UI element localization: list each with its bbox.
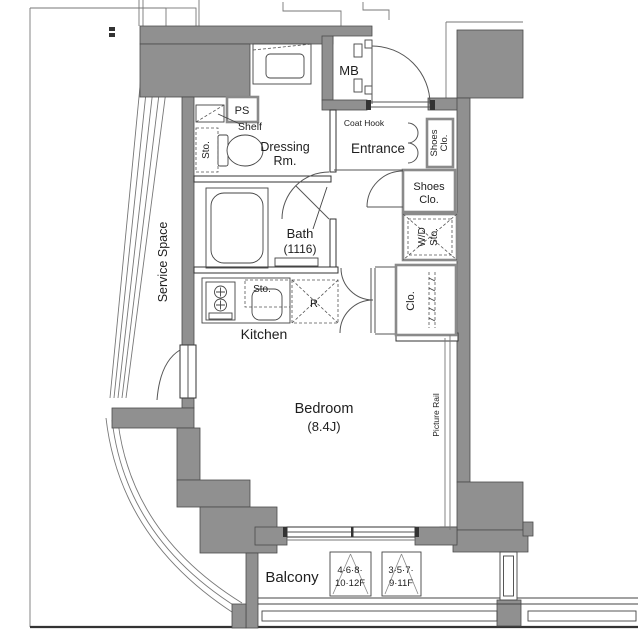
meter (354, 79, 362, 92)
wall-left-stub (182, 398, 194, 408)
bathtub-inner (211, 193, 263, 263)
balcony-railing-lines (258, 598, 638, 604)
fixture-label-shelf: Shelf (238, 121, 262, 133)
room-label-bedroom-size: (8.4J) (307, 419, 340, 434)
room-label-bath-size: (1116) (284, 242, 317, 256)
wall-curve-end-block (232, 604, 246, 628)
shelf-diagonal (196, 105, 224, 122)
entrance-door-arc (372, 46, 430, 104)
wall-balcony-left (246, 553, 258, 628)
facade-line (122, 45, 165, 398)
window-jamb-left (283, 527, 287, 537)
wall-bottom-right-block (457, 482, 523, 530)
room-label-dressing-2: Rm. (274, 154, 297, 168)
wall-left-jut (112, 408, 194, 428)
bedroom-details (445, 335, 450, 530)
window-jamb-right (415, 527, 419, 537)
fixture-label-shoes-small-2: Clo. (439, 135, 450, 152)
bath-label-leader (313, 187, 327, 229)
bathtub-outer (206, 188, 268, 268)
room-label-bath: Bath (287, 226, 314, 241)
walls (112, 26, 533, 628)
wall-step-1 (177, 428, 200, 480)
wall-tab-right (523, 522, 533, 536)
fixture-label-picture-rail: Picture Rail (431, 393, 441, 437)
fixture-label-closet: Clo. (405, 291, 417, 311)
room-label-bedroom: Bedroom (295, 401, 354, 417)
room-label-service-space: Service Space (156, 222, 170, 303)
fixture-label-wd-2: Sto. (429, 228, 440, 246)
fixture-label-shoes-2: Clo. (419, 194, 439, 206)
balcony-railing-panel-right (528, 611, 636, 621)
fixture-label-refrigerator: R (310, 298, 318, 310)
vanity-bowl (266, 54, 304, 78)
corridor-outline-left (283, 2, 341, 26)
window-mullion (351, 527, 354, 537)
room-label-entrance: Entrance (351, 141, 405, 156)
door-jamb-tab (365, 86, 372, 94)
entrance-latch-block (430, 100, 435, 110)
top-tab-box (166, 8, 196, 27)
floor-sign-1-line-1: 4·6·8· (337, 565, 362, 576)
door-jamb-tab (365, 40, 372, 48)
fixture-label-shoes-1: Shoes (413, 181, 445, 193)
wall-top-left-block (140, 44, 250, 97)
partition-dressing-bath (194, 176, 331, 182)
floor-sign-2-line-1: 3·5·7· (388, 565, 413, 576)
fixture-label-coat-hook: Coat Hook (344, 118, 385, 128)
wall-nub (109, 27, 115, 31)
floor-sign-1-line-2: 10·12F (335, 578, 365, 589)
window-casement-arc (157, 350, 180, 400)
fixture-label-ps: PS (235, 105, 250, 117)
wall-top-right-block (457, 30, 523, 98)
partition-hall-lower (330, 219, 336, 273)
facade-line (118, 45, 158, 398)
wall-window-left (255, 527, 287, 545)
bifold-door-symbol (408, 123, 418, 163)
kitchen-counter (202, 278, 290, 323)
bath-door-leaf (296, 186, 329, 219)
wall-mb-bottom (322, 100, 367, 110)
wall-mb-left (322, 36, 333, 100)
wall-left (182, 97, 194, 345)
toilet-bowl (227, 135, 263, 166)
wall-bottom-right-band (453, 530, 528, 552)
floor-plan: Service Space PS Shelf Sto. Dressing Rm.… (0, 0, 640, 640)
wall-nub (109, 33, 115, 37)
bedroom-door-arc-upper (341, 268, 373, 300)
bath-door-sill (275, 258, 318, 266)
entrance-door-sill (371, 102, 430, 107)
floor-sign-2-line-2: 9·11F (389, 578, 413, 589)
fixture-label-meter-box: MB (339, 63, 359, 78)
meter (354, 44, 362, 57)
corridor-outline-right (363, 2, 389, 20)
top-tab-lines (139, 0, 199, 26)
balcony-divider (500, 552, 517, 600)
room-label-balcony: Balcony (265, 569, 319, 586)
facade-line (110, 45, 144, 398)
wall-window-right (415, 527, 457, 545)
door-unit-stubs (375, 267, 396, 334)
wall-right (457, 98, 470, 482)
shoes-closet-door-arc (367, 171, 403, 207)
bedroom-door-arc-lower (340, 300, 373, 333)
toilet-tank (218, 135, 228, 166)
fixture-label-storage-dressing: Sto. (201, 141, 212, 159)
partition-hall-upper (330, 110, 336, 172)
picture-rail-line (445, 335, 450, 530)
fixture-label-wd-1: W/D (417, 227, 428, 246)
balcony-details (258, 552, 638, 621)
room-label-dressing-1: Dressing (260, 140, 309, 154)
room-label-kitchen: Kitchen (241, 326, 288, 342)
entrance-hinge-block (366, 100, 371, 110)
fixture-label-storage-kitchen: Sto. (253, 284, 271, 295)
wall-step-2 (177, 480, 250, 507)
balcony-railing-panel (262, 611, 497, 621)
wall-top-band (140, 26, 372, 44)
